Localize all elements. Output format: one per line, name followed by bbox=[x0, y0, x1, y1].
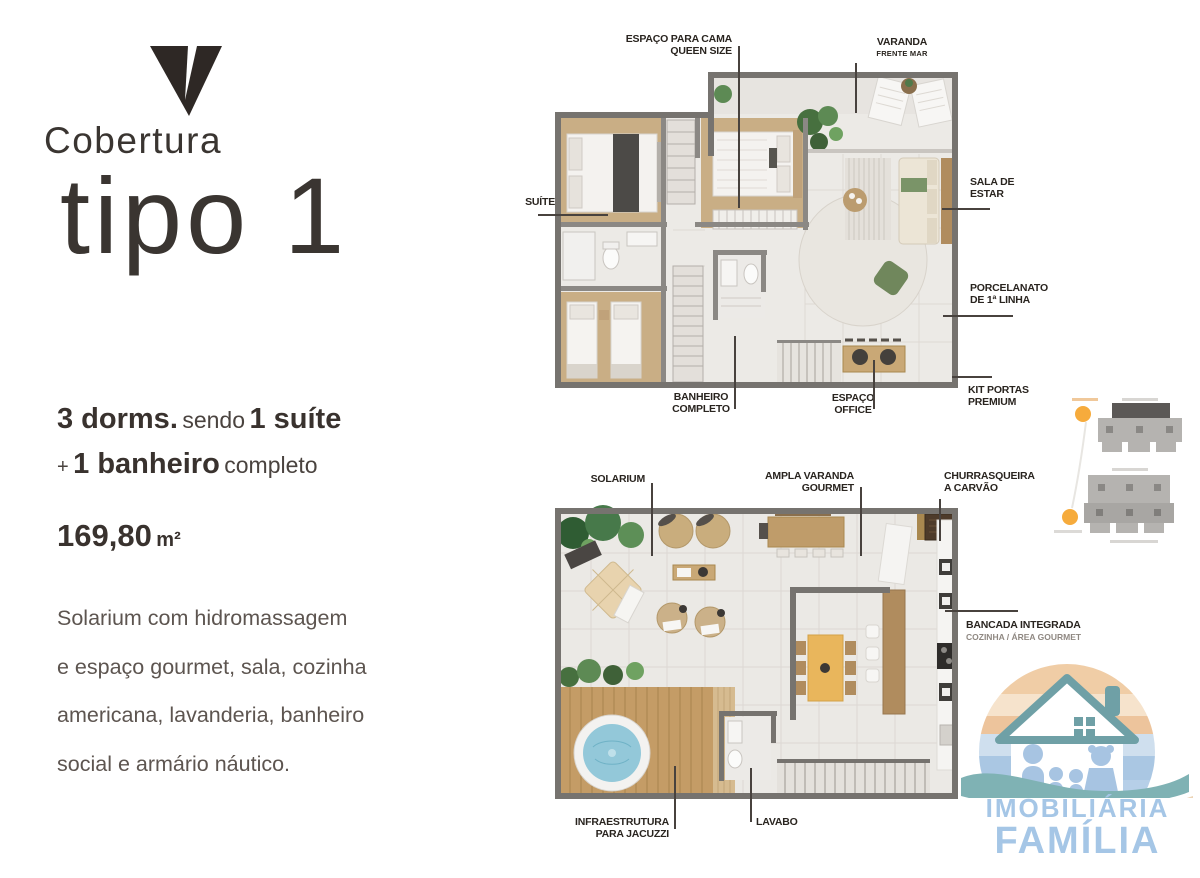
description-line: Solarium com hidromassagem bbox=[57, 594, 377, 643]
leader-ampla-varanda bbox=[860, 487, 862, 556]
page-subtitle: tipo 1 bbox=[60, 148, 348, 283]
leader-lavabo bbox=[750, 768, 752, 822]
label-lavabo: LAVABO bbox=[756, 816, 806, 828]
leader-bancada bbox=[945, 610, 1018, 612]
leader-office bbox=[873, 360, 875, 409]
description-paragraph: Solarium com hidromassagem e espaço gour… bbox=[57, 594, 377, 788]
dining-table bbox=[795, 635, 856, 701]
sun-caption bbox=[1054, 530, 1082, 533]
spec-dorms-count: 3 dorms. bbox=[57, 403, 178, 435]
suite-wardrobe bbox=[667, 120, 695, 204]
label-varanda: VARANDA FRENTE MAR bbox=[858, 36, 946, 60]
spec-banheiro: + 1 banheiro completo bbox=[57, 448, 318, 481]
sofa bbox=[899, 158, 939, 244]
description-line: social e armário náutico. bbox=[57, 740, 377, 789]
label-office: ESPAÇO OFFICE bbox=[811, 392, 895, 416]
sun-caption bbox=[1072, 398, 1098, 401]
description-line: americana, lavanderia, banheiro bbox=[57, 691, 377, 740]
agency-name-line2: FAMÍLIA bbox=[975, 820, 1180, 863]
spec-banheiro-suffix: completo bbox=[224, 452, 317, 478]
label-porcelanato: PORCELANATO DE 1ª LINHA bbox=[970, 282, 1060, 306]
side-table-plant bbox=[843, 188, 867, 212]
label-espaco-cama: ESPAÇO PARA CAMA QUEEN SIZE bbox=[600, 33, 732, 57]
key-plan bbox=[1050, 390, 1200, 550]
wood-bench bbox=[673, 565, 715, 580]
label-churrasqueira: CHURRASQUEIRA A CARVÃO bbox=[944, 470, 1048, 494]
glass-boundary bbox=[807, 149, 953, 153]
building-footprint-lower bbox=[1084, 468, 1174, 543]
sun-icon bbox=[1075, 406, 1091, 422]
brand-triangle-logo bbox=[150, 46, 222, 118]
label-infraestrutura: INFRAESTRUTURA PARA JACUZZI bbox=[575, 816, 669, 840]
spec-plus-sign: + bbox=[57, 456, 69, 478]
spec-dorms-middle: sendo bbox=[182, 407, 245, 433]
suite-bed bbox=[567, 134, 663, 212]
label-suite: SUÍTE bbox=[513, 196, 555, 208]
building-footprint-upper bbox=[1098, 398, 1182, 452]
corridor-wardrobe bbox=[673, 266, 703, 382]
spec-banheiro-count: 1 banheiro bbox=[73, 448, 220, 480]
label-banheiro: BANHEIRO COMPLETO bbox=[659, 391, 743, 415]
area-value: 169,80 m² bbox=[57, 518, 181, 554]
leader-sala-estar bbox=[942, 208, 990, 210]
leader-churrasqueira bbox=[939, 499, 941, 541]
leader-porcelanato bbox=[943, 315, 1013, 317]
description-line: e espaço gourmet, sala, cozinha bbox=[57, 643, 377, 692]
leader-suite bbox=[538, 214, 608, 216]
spec-suite-count: 1 suíte bbox=[249, 403, 341, 435]
stairs-upper bbox=[777, 340, 841, 382]
sideboard bbox=[941, 158, 952, 244]
stairs-lower bbox=[777, 759, 930, 797]
label-solarium: SOLARIUM bbox=[585, 473, 645, 485]
label-sala-estar: SALA DE ESTAR bbox=[970, 176, 1040, 200]
leader-kit-portas bbox=[952, 376, 992, 378]
leader-espaco-cama bbox=[738, 46, 740, 208]
upper-floor-plan bbox=[555, 70, 965, 392]
label-ampla-varanda: AMPLA VARANDA GOURMET bbox=[762, 470, 854, 494]
leader-infraestrutura bbox=[674, 766, 676, 829]
label-kit-portas: KIT PORTAS PREMIUM bbox=[968, 384, 1048, 408]
spec-dorms: 3 dorms. sendo 1 suíte bbox=[57, 403, 341, 436]
banheiro-completo bbox=[713, 250, 767, 320]
jacuzzi bbox=[574, 715, 650, 791]
leader-banheiro bbox=[734, 336, 736, 409]
label-bancada: BANCADA INTEGRADA COZINHA / ÁREA GOURMET bbox=[966, 619, 1086, 643]
agency-logo bbox=[955, 628, 1195, 798]
leader-solarium bbox=[651, 483, 653, 556]
lower-floor-plan bbox=[555, 495, 965, 810]
sun-icon bbox=[1062, 509, 1078, 525]
lavabo-room bbox=[719, 711, 777, 781]
leader-varanda bbox=[855, 63, 857, 113]
penthouse-flyer: Cobertura tipo 1 3 dorms. sendo 1 suíte … bbox=[0, 0, 1200, 878]
queen-bed bbox=[713, 130, 802, 198]
